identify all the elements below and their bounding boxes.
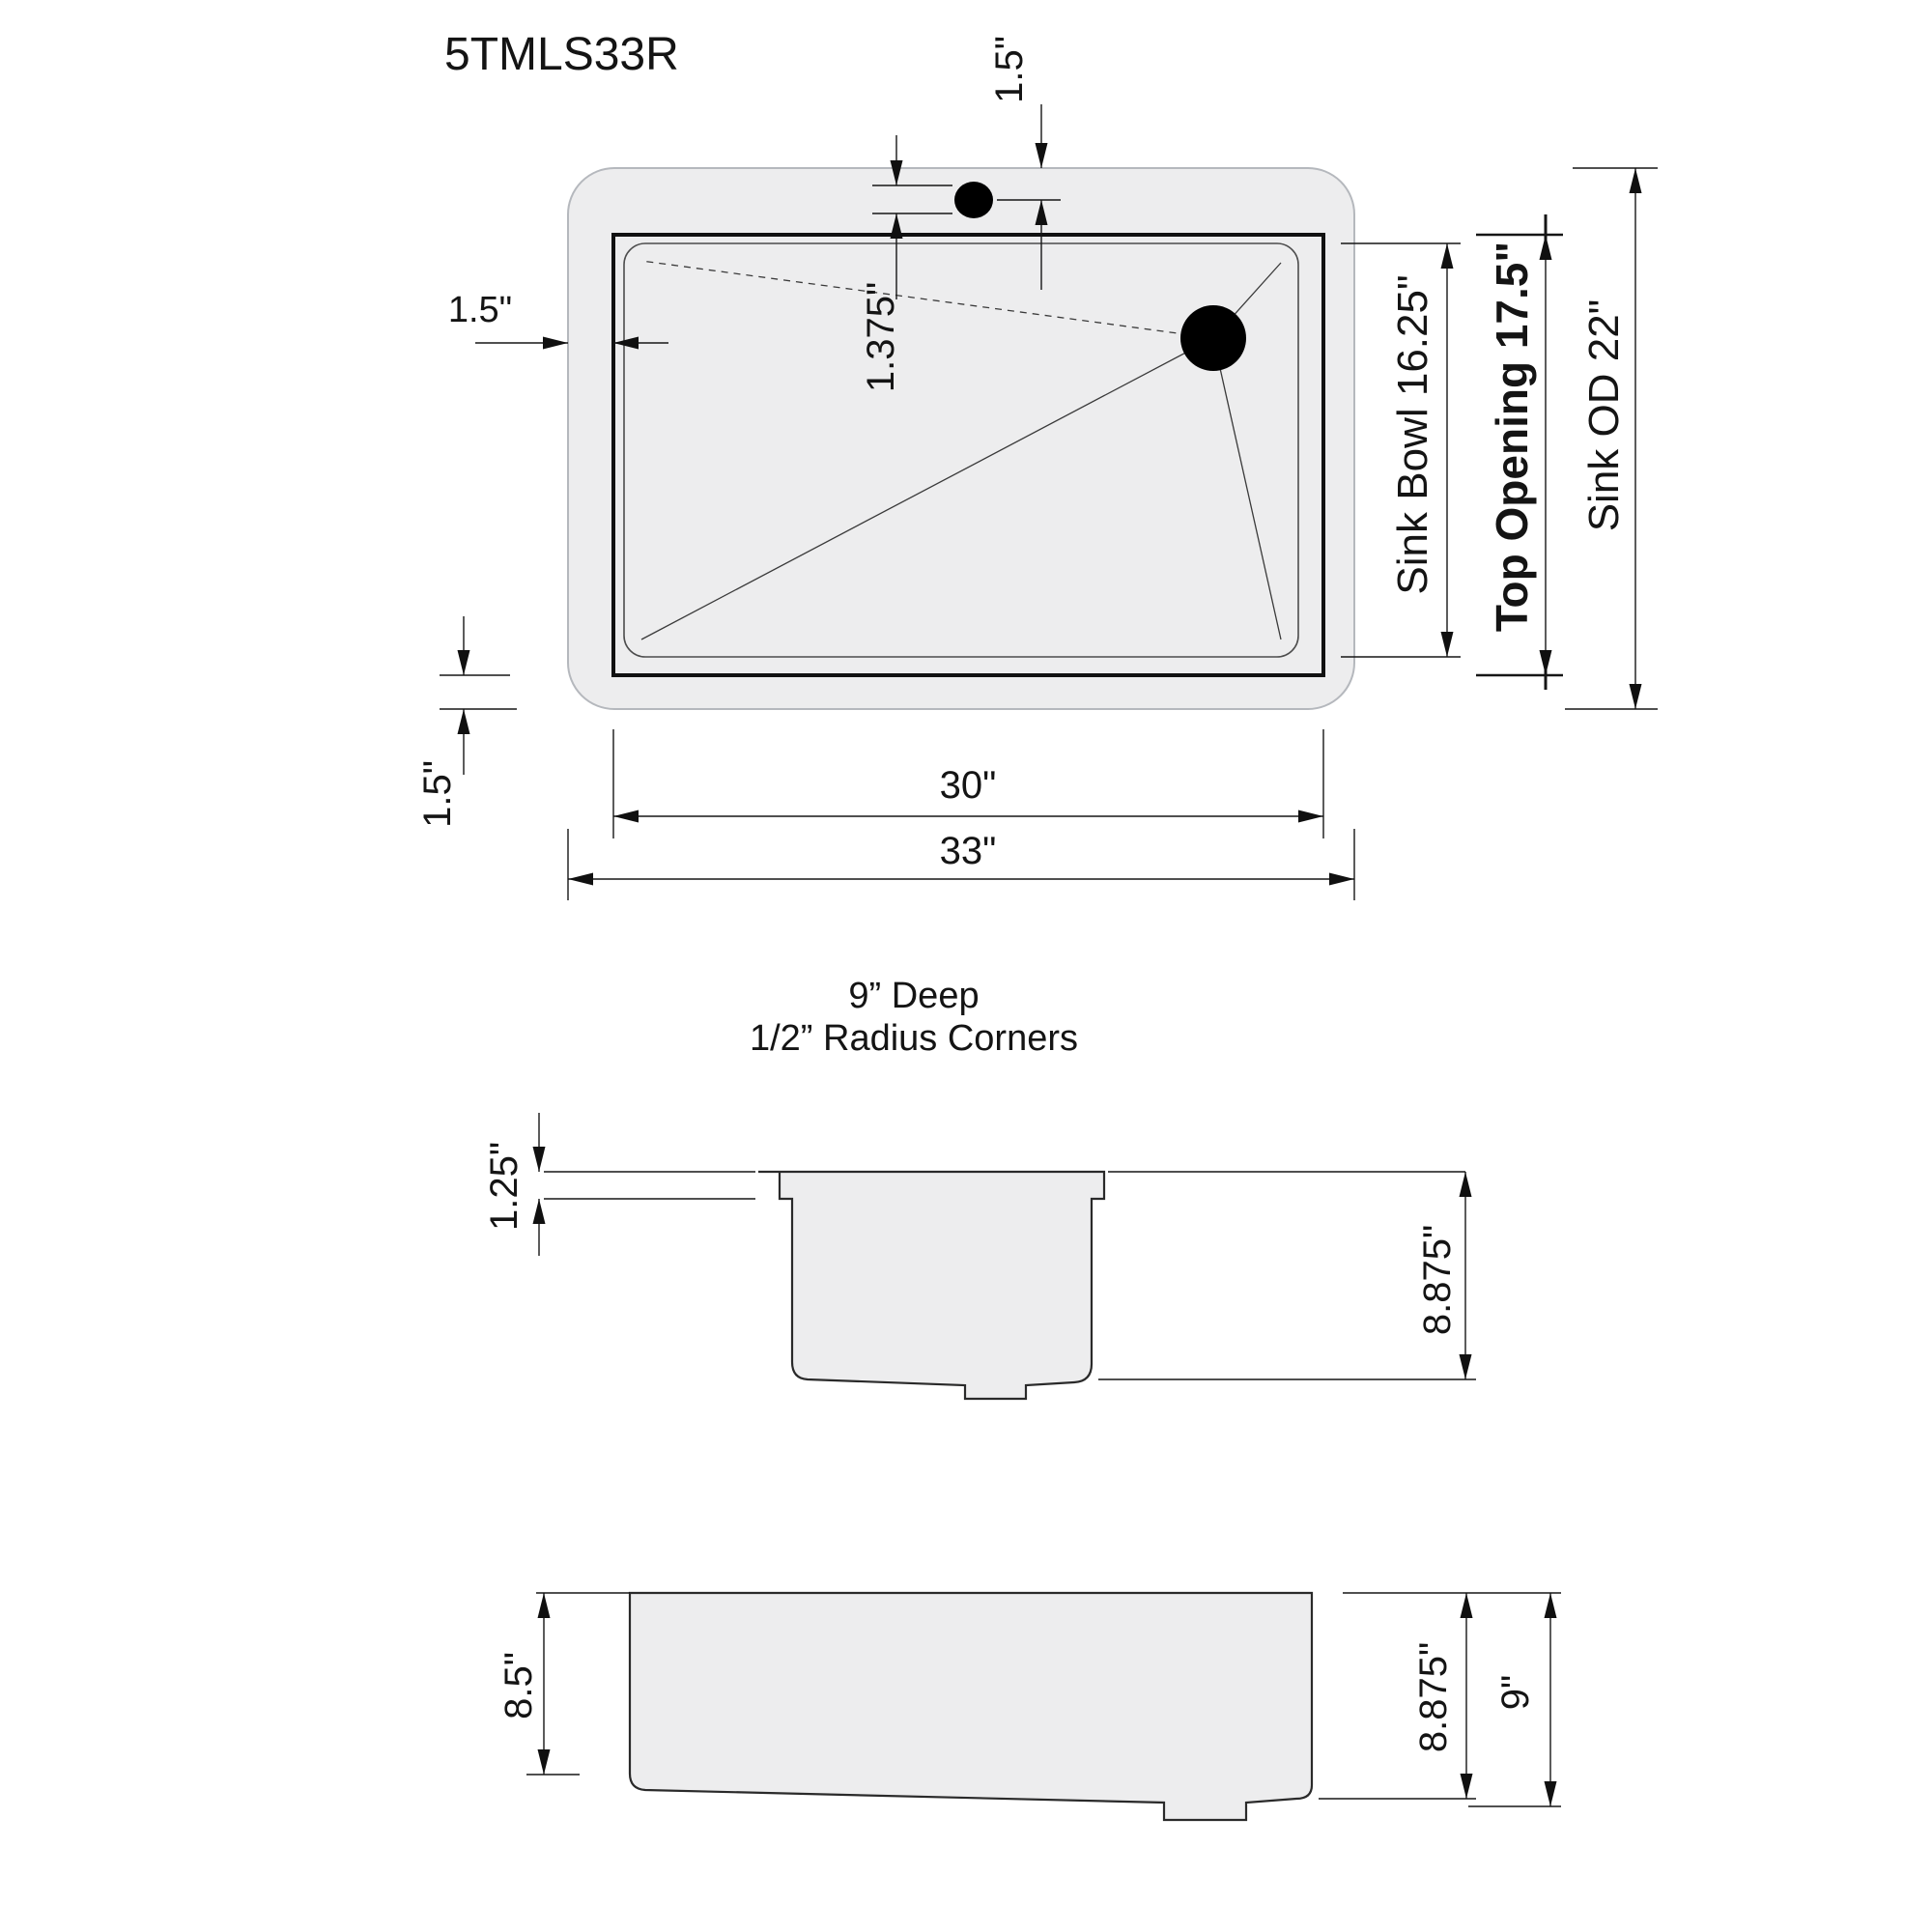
dim-overall-depth: 9" (1468, 1593, 1561, 1806)
dim-rim-bottom-label: 1.5" (416, 760, 459, 828)
arrowhead (1545, 1593, 1557, 1618)
note-depth: 9” Deep (848, 976, 979, 1016)
drawing-title: 5TMLS33R (444, 29, 679, 80)
arrowhead (533, 1199, 546, 1224)
arrowhead (538, 1593, 551, 1618)
arrowhead (568, 873, 593, 886)
faucet-hole-icon (954, 182, 993, 218)
arrowhead (1460, 1354, 1472, 1379)
sink-technical-drawing: 1.375" 1.5" 1.5" (0, 0, 1932, 1932)
arrowhead (1298, 810, 1323, 823)
arrowhead (1545, 1781, 1557, 1806)
arrowhead (1441, 243, 1454, 269)
drain-icon (1180, 305, 1246, 371)
notes: 9” Deep 1/2” Radius Corners (750, 976, 1078, 1059)
top-view: 1.375" 1.5" 1.5" (416, 36, 1658, 900)
dim-rim-left-label: 1.5" (448, 290, 512, 330)
arrowhead (1540, 650, 1552, 675)
dim-top-opening-label: Top Opening 17.5" (1487, 241, 1537, 632)
arrowhead (1329, 873, 1354, 886)
dim-opening-width: 30" (613, 729, 1323, 838)
arrowhead (1461, 1593, 1473, 1618)
arrowhead (1630, 168, 1642, 193)
arrowhead (458, 709, 470, 734)
side-view-profile (630, 1593, 1312, 1820)
arrowhead (1460, 1172, 1472, 1197)
dim-end-depth-label: 8.875" (1416, 1225, 1459, 1335)
arrowhead (543, 337, 568, 350)
dim-rim-bottom: 1.5" (416, 616, 517, 828)
note-radius-corners: 1/2” Radius Corners (750, 1018, 1078, 1059)
dim-faucet-offset-label: 1.5" (988, 36, 1031, 103)
arrowhead (1630, 684, 1642, 709)
arrowhead (538, 1749, 551, 1775)
dim-opening-width-label: 30" (940, 764, 997, 807)
arrowhead (533, 1147, 546, 1172)
side-view: 8.5" 8.875" 9" (497, 1593, 1561, 1820)
dim-end-depth: 8.875" (1098, 1172, 1476, 1379)
arrowhead (1036, 143, 1048, 168)
arrowhead (458, 650, 470, 675)
dim-shallow-depth-label: 8.5" (497, 1652, 540, 1719)
dim-side-depth-label: 8.875" (1412, 1642, 1455, 1752)
dim-shallow-depth: 8.5" (497, 1593, 630, 1775)
dim-sink-od-label: Sink OD 22" (1580, 299, 1628, 532)
dim-sink-od: Sink OD 22" (1565, 168, 1658, 709)
dim-faucet-hole-label: 1.375" (860, 282, 902, 392)
arrowhead (1441, 632, 1454, 657)
end-view-profile (758, 1172, 1104, 1399)
dim-sink-bowl-label: Sink Bowl 16.25" (1389, 274, 1436, 594)
dim-top-opening: Top Opening 17.5" (1476, 214, 1563, 690)
dim-overall-width-label: 33" (940, 830, 997, 872)
dim-flange-height-label: 1.25" (483, 1142, 526, 1231)
arrowhead (1461, 1774, 1473, 1799)
end-view: 1.25" 8.875" (483, 1113, 1476, 1399)
dim-flange-height: 1.25" (483, 1113, 755, 1256)
drawing-canvas: 1.375" 1.5" 1.5" (0, 0, 1932, 1932)
arrowhead (1540, 235, 1552, 260)
arrowhead (613, 810, 639, 823)
dim-overall-depth-label: 9" (1494, 1675, 1537, 1710)
dim-overall-width: 33" (568, 829, 1354, 900)
dim-sink-bowl: Sink Bowl 16.25" (1341, 243, 1461, 657)
